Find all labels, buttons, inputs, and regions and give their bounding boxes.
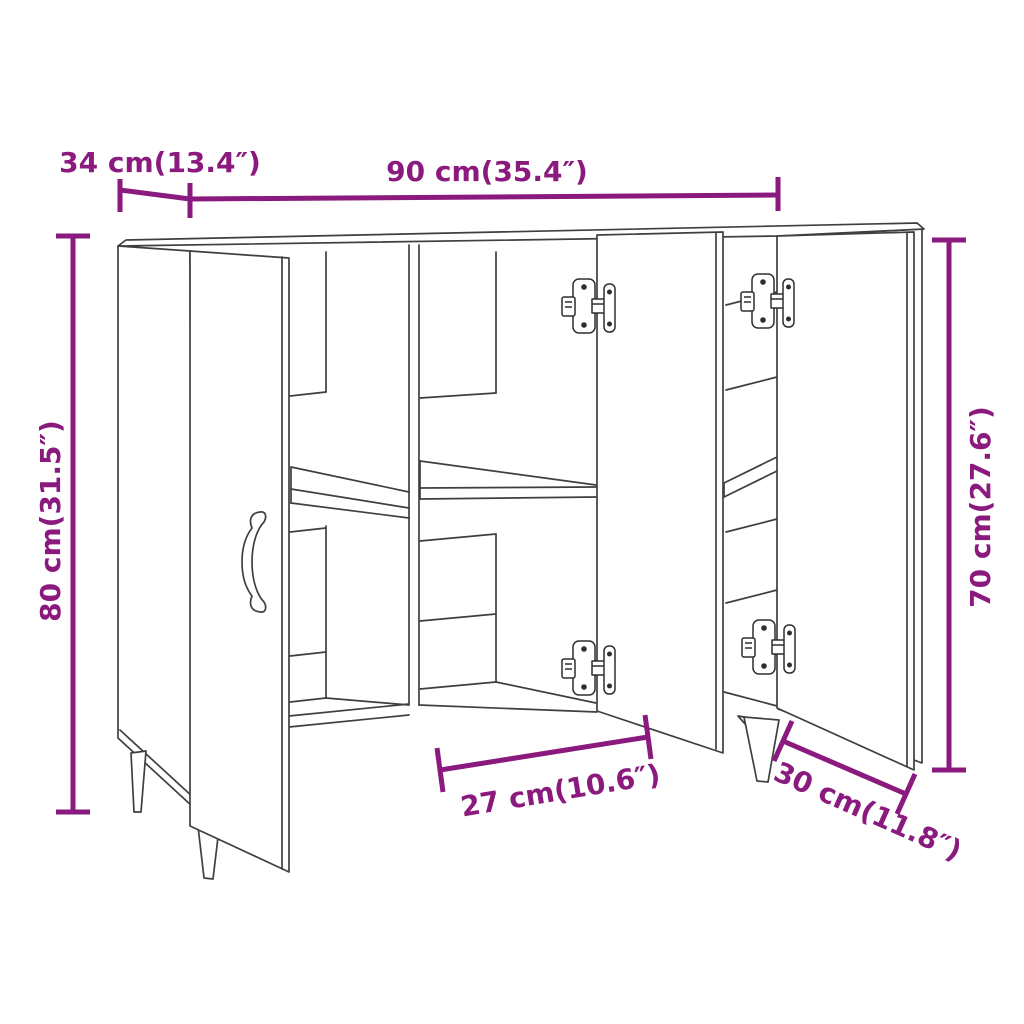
dimension-middle-compartment: 27 cm(10.6″) [437,715,663,824]
left-shelf [291,467,409,518]
dimension-label-width: 90 cm(35.4″) [386,155,588,188]
bottom-panel-edge [289,704,597,727]
product-dimension-diagram: 34 cm(13.4″) 90 cm(35.4″) 80 cm(31.5″) 7… [0,0,1024,1024]
right-shelf [724,457,777,497]
dimension-body-height: 70 cm(27.6″) [932,240,997,770]
hinge-icon [742,620,795,674]
diagram-canvas: 34 cm(13.4″) 90 cm(35.4″) 80 cm(31.5″) 7… [0,0,1024,1024]
middle-door [597,232,723,753]
dimension-total-height: 80 cm(31.5″) [34,236,90,812]
hinge-icon [741,274,794,328]
hinge-icon [562,279,615,333]
dimension-label-depth: 34 cm(13.4″) [59,146,261,179]
left-door [190,251,289,872]
left-side-panel [118,246,194,806]
dimension-width: 90 cm(35.4″) [190,155,778,211]
middle-leg [738,716,779,782]
right-door [777,232,914,770]
dimension-label-total-height: 80 cm(31.5″) [34,420,67,622]
left-back-leg [131,751,146,812]
hinge-icon [562,641,615,695]
dimension-label-body-height: 70 cm(27.6″) [964,406,997,608]
middle-shelf [420,461,596,499]
dimension-label-middle-compartment: 27 cm(10.6″) [458,758,662,824]
center-divider [409,245,419,705]
dimension-depth: 34 cm(13.4″) [59,146,261,218]
